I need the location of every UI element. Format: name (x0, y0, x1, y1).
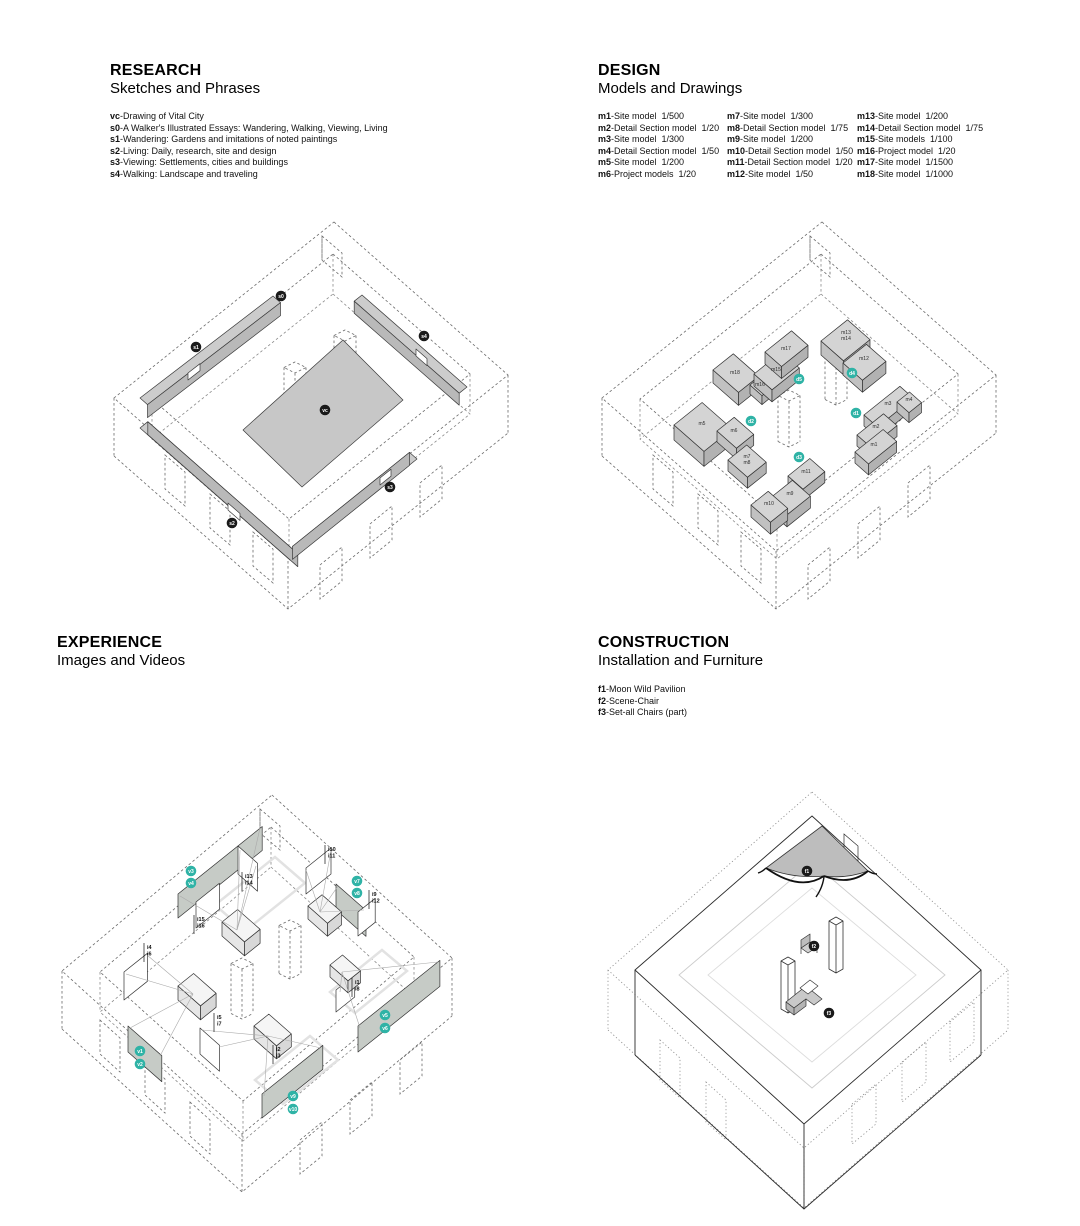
design-drawing (602, 222, 996, 609)
svg-text:d1: d1 (853, 411, 859, 417)
experience-column-2 (279, 920, 301, 979)
marker-s1: s1 (191, 342, 202, 353)
svg-text:d2: d2 (748, 419, 754, 425)
svg-text:s2: s2 (229, 521, 235, 527)
svg-text:v1: v1 (137, 1049, 143, 1055)
svg-text:d5: d5 (796, 377, 802, 383)
model-label-m12: m12 (859, 356, 869, 362)
model-label-m17: m17 (781, 346, 791, 352)
construction-wall-openings (660, 1002, 974, 1144)
svg-text:i3: i3 (276, 1054, 281, 1060)
svg-text:i15: i15 (197, 917, 205, 923)
model-label-m11: m11 (801, 469, 811, 475)
svg-text:i1: i1 (355, 980, 360, 986)
svg-text:s4: s4 (421, 334, 427, 340)
svg-text:f2: f2 (812, 944, 817, 950)
marker-s2: s2 (227, 518, 238, 529)
marker-v3: v3 (186, 866, 197, 877)
svg-text:i10: i10 (328, 847, 336, 853)
svg-text:f1: f1 (805, 869, 810, 875)
svg-text:v3: v3 (188, 869, 194, 875)
marker-f1: f1 (802, 866, 813, 877)
model-label-m9: m9 (787, 491, 794, 497)
svg-text:i2: i2 (276, 1047, 281, 1053)
design-column-2 (778, 390, 800, 447)
marker-f3: f3 (824, 1008, 835, 1019)
model-label-m5: m5 (699, 421, 706, 427)
image-label-i5-i7: i5i7 (214, 1013, 222, 1032)
model-label-m6: m6 (731, 428, 738, 434)
marker-d3: d3 (794, 452, 805, 463)
svg-text:v8: v8 (354, 891, 360, 897)
svg-text:s0: s0 (278, 294, 284, 300)
svg-text:i14: i14 (245, 881, 254, 887)
svg-text:v9: v9 (290, 1094, 296, 1100)
svg-text:vc: vc (322, 408, 328, 414)
marker-s0: s0 (276, 291, 287, 302)
model-label-m16: m16 (755, 382, 765, 388)
model-label-m2: m2 (873, 424, 880, 430)
design-room-outline (602, 222, 996, 609)
svg-text:d4: d4 (849, 371, 855, 377)
svg-text:s3: s3 (387, 485, 393, 491)
svg-text:i11: i11 (328, 854, 335, 860)
marker-d5: d5 (794, 374, 805, 385)
research-exhibit-walls (140, 295, 467, 567)
svg-text:i7: i7 (217, 1022, 222, 1028)
model-label-m15: m15 (771, 367, 781, 373)
marker-v6: v6 (380, 1023, 391, 1034)
marker-v10: v10 (288, 1104, 299, 1115)
marker-d1: d1 (851, 408, 862, 419)
research-roof-notch (322, 236, 342, 277)
image-label-i15-i16: i15i16 (194, 915, 205, 934)
experience-projector-stations (124, 827, 440, 1119)
marker-s4: s4 (419, 331, 430, 342)
model-label-m18: m18 (730, 370, 740, 376)
marker-s3: s3 (385, 482, 396, 493)
experience-roof-notch (260, 809, 280, 850)
model-label-m8: m8 (744, 460, 751, 466)
design-roof-notch (810, 236, 830, 277)
construction-floor-mat-1 (679, 862, 945, 1088)
svg-text:v4: v4 (188, 881, 194, 887)
marker-vc: vc (320, 405, 331, 416)
column-right (829, 917, 843, 973)
drawings-canvas: s0s1s2s3s4vcf1f2f3d1d2d3d4d5v3v4v7v8v5v6… (0, 0, 1080, 1226)
model-label-m3: m3 (885, 401, 892, 407)
svg-text:i4: i4 (147, 945, 153, 951)
svg-text:v7: v7 (354, 879, 360, 885)
svg-text:i8: i8 (355, 987, 360, 993)
marker-v1: v1 (135, 1046, 146, 1057)
moon-wild-pavilion (758, 826, 877, 897)
pavilion-canopy (766, 826, 868, 877)
svg-text:v2: v2 (137, 1062, 143, 1068)
model-label-m10: m10 (764, 501, 774, 507)
marker-d2: d2 (746, 416, 757, 427)
marker-f2: f2 (809, 941, 820, 952)
svg-text:i12: i12 (372, 899, 380, 905)
model-label-m4: m4 (906, 397, 913, 403)
marker-d4: d4 (847, 368, 858, 379)
svg-text:v6: v6 (382, 1026, 388, 1032)
drawing-markers: s0s1s2s3s4vcf1f2f3d1d2d3d4d5v3v4v7v8v5v6… (135, 291, 913, 1115)
experience-column-1 (231, 958, 253, 1019)
marker-v8: v8 (352, 888, 363, 899)
svg-text:i13: i13 (245, 874, 253, 880)
page: { "colors": {"accent_teal":"#2FB3A6","ma… (0, 0, 1080, 1226)
construction-floor-mat-2 (708, 888, 916, 1062)
svg-text:d3: d3 (796, 455, 802, 461)
projection-cones (126, 828, 438, 1096)
marker-v4: v4 (186, 878, 197, 889)
model-label-m14: m14 (841, 336, 851, 342)
svg-text:v5: v5 (382, 1013, 388, 1019)
svg-text:s1: s1 (193, 345, 199, 351)
design-model-blocks (674, 320, 922, 534)
svg-text:f3: f3 (827, 1011, 832, 1017)
svg-text:i16: i16 (197, 924, 205, 930)
marker-v7: v7 (352, 876, 363, 887)
marker-v2: v2 (135, 1059, 146, 1070)
marker-v9: v9 (288, 1091, 299, 1102)
marker-v5: v5 (380, 1010, 391, 1021)
svg-text:v10: v10 (289, 1107, 298, 1113)
svg-text:i6: i6 (147, 952, 152, 958)
model-label-m1: m1 (871, 442, 878, 448)
svg-text:i5: i5 (217, 1015, 222, 1021)
svg-text:i9: i9 (372, 892, 377, 898)
